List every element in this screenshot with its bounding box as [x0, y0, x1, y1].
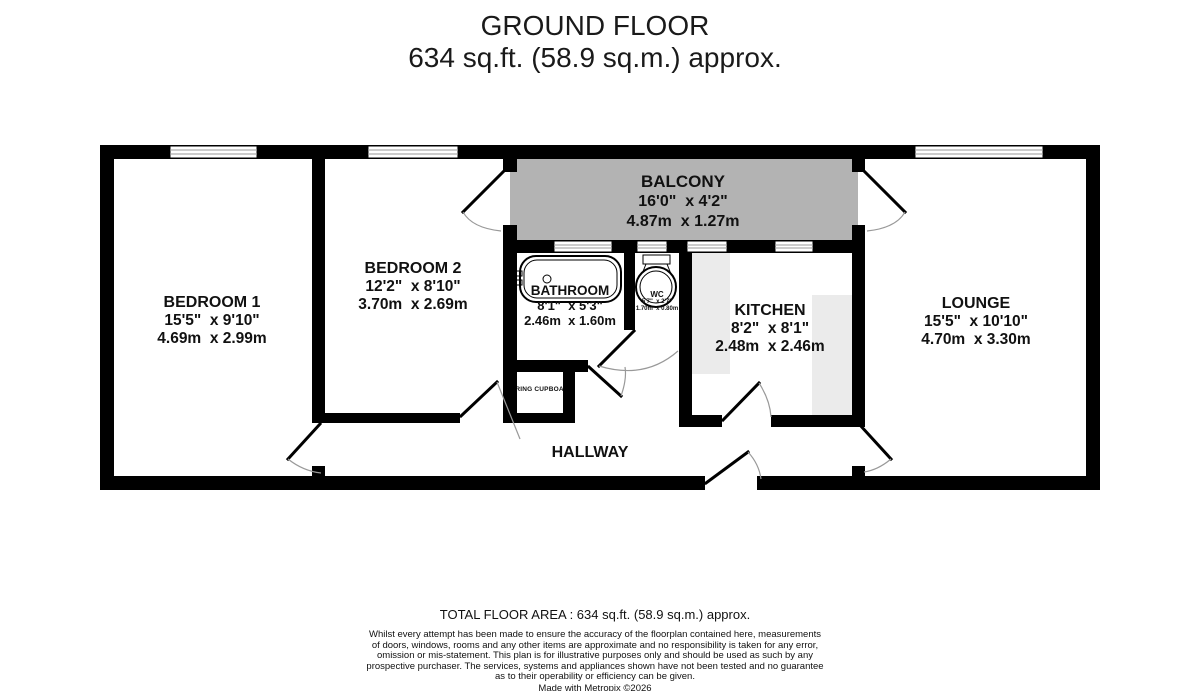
wc-window	[637, 241, 667, 252]
kitchen-imperial: 8'2" x 8'1"	[670, 320, 870, 338]
lounge-door	[859, 424, 891, 472]
lounge-imperial: 15'5" x 10'10"	[876, 313, 1076, 331]
bathroom-window	[554, 241, 612, 252]
bathroom-imperial: 8'1" x 5'3"	[500, 298, 640, 313]
wc-door	[599, 331, 678, 371]
wc-name: WC	[627, 291, 687, 299]
kitchen-label: KITCHEN 8'2" x 8'1" 2.48m x 2.46m	[670, 302, 870, 356]
hallway-name: HALLWAY	[490, 444, 690, 462]
kitchen-window-right	[775, 241, 813, 252]
balcony-imperial: 16'0" x 4'2"	[533, 192, 833, 212]
balcony-metric: 4.87m x 1.27m	[533, 212, 833, 232]
bedroom2-label: BEDROOM 2 12'2" x 8'10" 3.70m x 2.69m	[313, 260, 513, 314]
bathroom-name: BATHROOM	[500, 283, 640, 298]
balcony-label: BALCONY 16'0" x 4'2" 4.87m x 1.27m	[533, 172, 833, 232]
kitchen-metric: 2.48m x 2.46m	[670, 338, 870, 356]
kitchen-name: KITCHEN	[670, 302, 870, 320]
balcony-name: BALCONY	[533, 172, 833, 192]
credit-text: Made with Metropix ©2026	[0, 683, 1190, 691]
bedroom2-imperial: 12'2" x 8'10"	[313, 278, 513, 296]
disclaimer-text: Whilst every attempt has been made to en…	[0, 630, 1190, 683]
total-floor-area: TOTAL FLOOR AREA : 634 sq.ft. (58.9 sq.m…	[0, 607, 1190, 623]
bathroom-door	[589, 367, 626, 396]
bedroom1-door	[288, 424, 321, 473]
lounge-window	[915, 146, 1043, 158]
bedroom1-imperial: 15'5" x 9'10"	[112, 312, 312, 330]
bedroom2-window	[368, 146, 458, 158]
lounge-label: LOUNGE 15'5" x 10'10" 4.70m x 3.30m	[876, 295, 1076, 349]
bathroom-label: BATHROOM 8'1" x 5'3" 2.46m x 1.60m	[500, 283, 640, 328]
bedroom2-name: BEDROOM 2	[313, 260, 513, 278]
bedroom1-name: BEDROOM 1	[112, 294, 312, 312]
hallway-label: HALLWAY	[490, 444, 690, 462]
bedroom2-metric: 3.70m x 2.69m	[313, 296, 513, 314]
bathroom-metric: 2.46m x 1.60m	[500, 313, 640, 328]
bedroom1-window	[170, 146, 257, 158]
floorplan-page: GROUND FLOOR 634 sq.ft. (58.9 sq.m.) app…	[0, 0, 1200, 691]
bedroom1-metric: 4.69m x 2.99m	[112, 330, 312, 348]
balcony-door-left	[463, 170, 505, 231]
entrance-door	[706, 452, 761, 483]
kitchen-window-left	[687, 241, 727, 252]
lounge-metric: 4.70m x 3.30m	[876, 331, 1076, 349]
footer: TOTAL FLOOR AREA : 634 sq.ft. (58.9 sq.m…	[0, 607, 1190, 691]
balcony-door-right	[863, 170, 905, 231]
bedroom1-label: BEDROOM 1 15'5" x 9'10" 4.69m x 2.99m	[112, 294, 312, 348]
lounge-name: LOUNGE	[876, 295, 1076, 313]
kitchen-door	[723, 383, 771, 420]
